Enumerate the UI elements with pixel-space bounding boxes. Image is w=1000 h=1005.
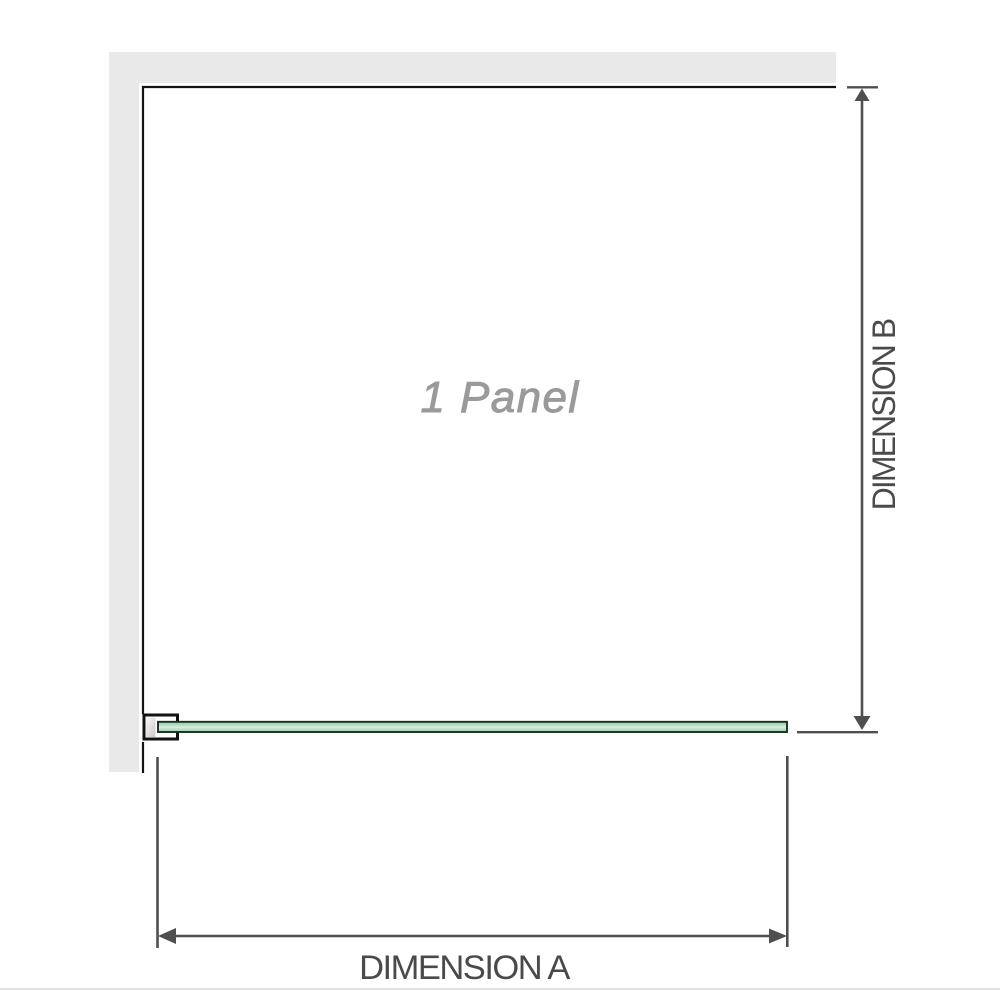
svg-text:DIMENSION B: DIMENSION B: [866, 319, 902, 510]
svg-text:DIMENSION A: DIMENSION A: [359, 949, 570, 987]
svg-text:1 Panel: 1 Panel: [420, 373, 579, 422]
